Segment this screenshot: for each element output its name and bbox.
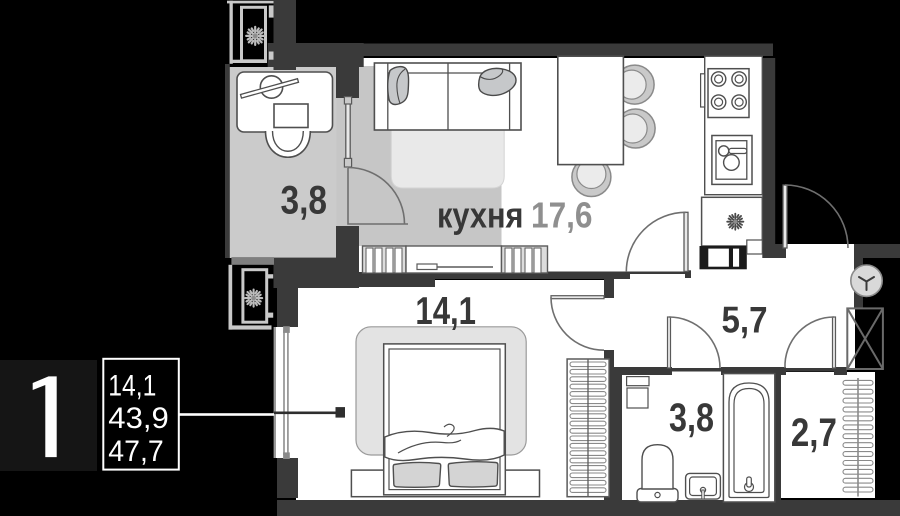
svg-text:43,9: 43,9 (108, 402, 169, 435)
svg-text:2,7: 2,7 (791, 411, 837, 455)
svg-text:3,8: 3,8 (281, 179, 328, 223)
svg-text:5,7: 5,7 (722, 300, 768, 341)
svg-text:14,1: 14,1 (108, 369, 156, 402)
svg-text:17,6: 17,6 (531, 195, 593, 236)
svg-text:47,7: 47,7 (108, 435, 163, 468)
svg-text:кухня: кухня (437, 195, 524, 236)
svg-text:3,8: 3,8 (669, 396, 714, 440)
svg-text:14,1: 14,1 (415, 290, 476, 333)
